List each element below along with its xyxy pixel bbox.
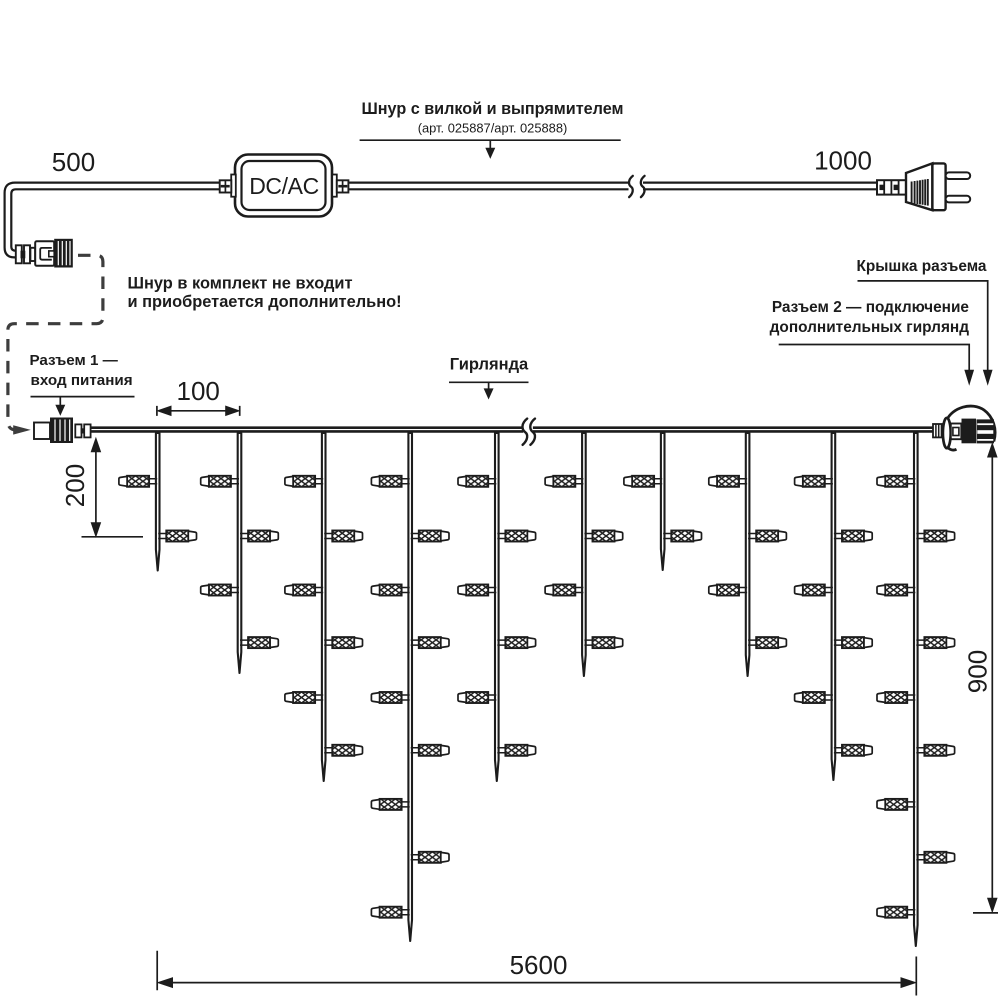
svg-text:100: 100	[177, 376, 220, 406]
svg-text:Шнур с вилкой и выпрямителем: Шнур с вилкой и выпрямителем	[362, 100, 624, 118]
svg-text:и приобретается дополнительно!: и приобретается дополнительно!	[128, 293, 402, 311]
svg-text:дополнительных гирлянд: дополнительных гирлянд	[770, 319, 970, 336]
svg-text:500: 500	[52, 147, 95, 177]
svg-text:200: 200	[60, 464, 90, 507]
svg-text:Разъем 2 — подключение: Разъем 2 — подключение	[772, 299, 970, 316]
svg-text:5600: 5600	[510, 950, 568, 980]
svg-text:DC/AC: DC/AC	[249, 173, 319, 199]
svg-text:1000: 1000	[814, 146, 872, 176]
svg-text:Шнур в комплект не входит: Шнур в комплект не входит	[128, 274, 353, 292]
svg-text:Гирлянда: Гирлянда	[450, 356, 529, 374]
svg-text:900: 900	[963, 650, 993, 693]
svg-text:вход питания: вход питания	[31, 372, 133, 389]
svg-text:Разъем 1 —: Разъем 1 —	[30, 352, 119, 369]
svg-text:(арт. 025887/арт. 025888): (арт. 025887/арт. 025888)	[418, 121, 568, 136]
svg-text:Крышка разъема: Крышка разъема	[856, 258, 986, 275]
